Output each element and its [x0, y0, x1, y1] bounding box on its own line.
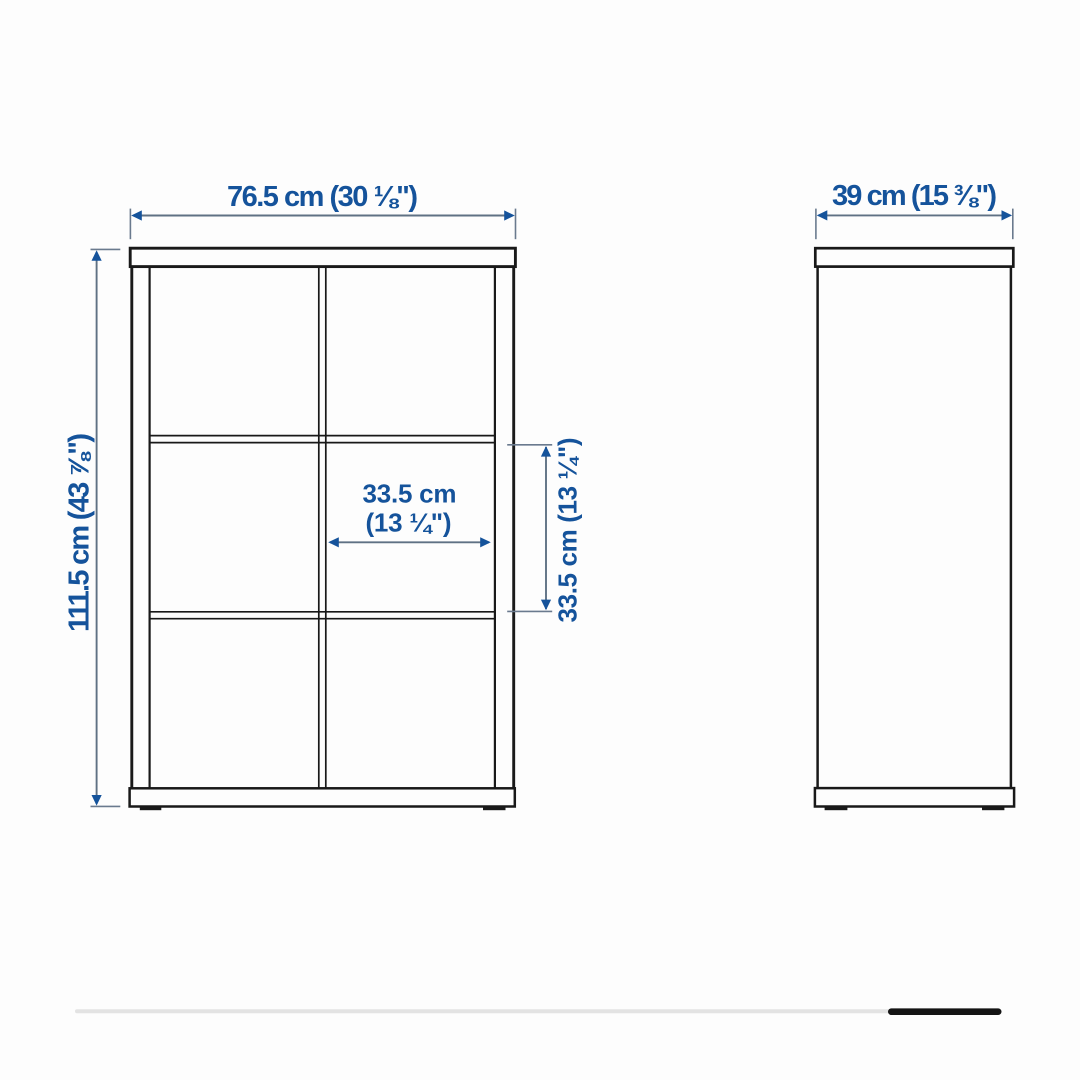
svg-text:39 cm (15 ⅜"): 39 cm (15 ⅜") [832, 180, 997, 212]
svg-text:33.5 cm: 33.5 cm [363, 479, 457, 509]
svg-text:76.5 cm (30 ⅛"): 76.5 cm (30 ⅛") [227, 181, 418, 213]
svg-text:(13 ¼"): (13 ¼") [366, 508, 452, 538]
svg-text:111.5 cm (43 ⅞"): 111.5 cm (43 ⅞") [64, 433, 96, 632]
svg-text:33.5 cm (13 ¼"): 33.5 cm (13 ¼") [553, 438, 583, 623]
